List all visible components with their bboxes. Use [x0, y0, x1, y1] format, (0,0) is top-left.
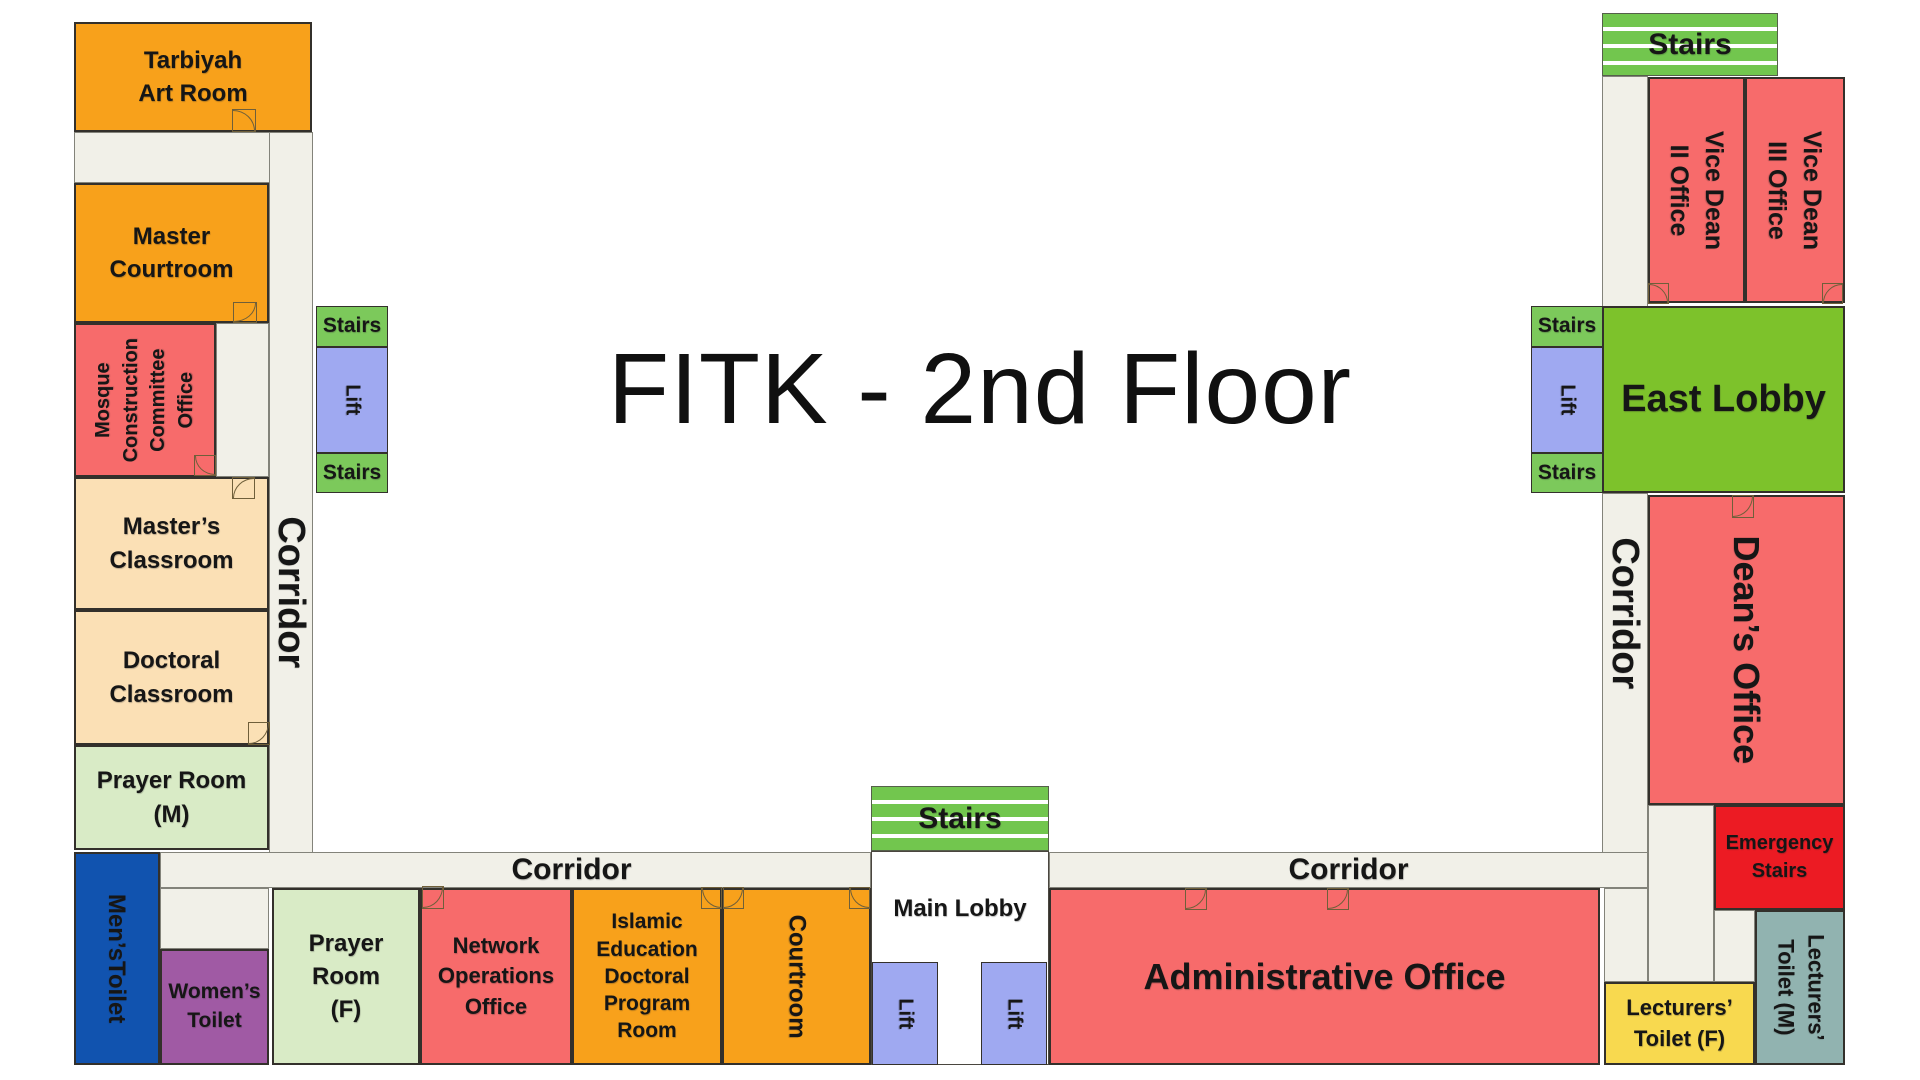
emergency-stairs: Emergency Stairs	[1714, 805, 1845, 910]
stairs-main-lobby-label: Stairs	[918, 798, 1001, 839]
courtroom-label: Courtroom	[780, 915, 813, 1039]
east-lobby-label: East Lobby	[1621, 373, 1826, 425]
administrative-office-label: Administrative Office	[1143, 952, 1505, 1002]
east-lobby: East Lobby	[1602, 306, 1845, 493]
room-tarbiyah-art-room: Tarbiyah Art Room	[74, 22, 312, 132]
lift-left: Lift	[316, 347, 388, 453]
lecturers-toilet-m-label: Lecturers’ Toilet (M)	[1770, 934, 1831, 1040]
door-icon	[232, 109, 256, 132]
stairs-main-lobby: Stairs	[871, 786, 1049, 851]
islamic-education-doctoral-program-room-label: Islamic Education Doctoral Program Room	[596, 908, 698, 1044]
room-courtroom: Courtroom	[722, 888, 871, 1065]
corridor-bottom-right-label: Corridor	[1289, 849, 1409, 890]
corridor-left-label: Corridor	[265, 517, 317, 669]
tarbiyah-art-room-label: Tarbiyah Art Room	[138, 44, 247, 110]
floor-beside-mosque-office	[216, 323, 269, 477]
room-lecturers-toilet-m: Lecturers’ Toilet (M)	[1755, 910, 1845, 1065]
lecturers-toilet-f-label: Lecturers’ Toilet (F)	[1626, 993, 1732, 1054]
womens-toilet-label: Women’s Toilet	[168, 978, 260, 1036]
room-mens-toilet: Men’sToilet	[74, 852, 160, 1065]
doctoral-classroom-label: Doctoral Classroom	[109, 644, 233, 710]
room-lecturers-toilet-f: Lecturers’ Toilet (F)	[1604, 982, 1755, 1065]
mosque-construction-committee-office-label: Mosque Construction Committee Office	[90, 338, 200, 462]
floor-above-womens-toilet	[160, 888, 269, 949]
room-mosque-construction-committee-office: Mosque Construction Committee Office	[74, 323, 216, 477]
corridor-bottom-right: Corridor	[1049, 852, 1648, 888]
vice-dean-ii-office-label: Vice Dean II Office	[1662, 130, 1731, 249]
door-icon	[1185, 888, 1207, 910]
room-network-operations-office: Network Operations Office	[420, 888, 572, 1065]
room-vice-dean-ii-office: Vice Dean II Office	[1648, 77, 1745, 303]
master-courtroom-label: Master Courtroom	[110, 220, 234, 286]
room-deans-office: Dean’s Office	[1648, 495, 1845, 805]
room-prayer-room-f: Prayer Room (F)	[272, 888, 420, 1065]
stairs-top-right-label: Stairs	[1648, 24, 1731, 65]
lift-lobby-east-label: Lift	[1000, 998, 1028, 1029]
stairs-top-right: Stairs	[1602, 13, 1778, 76]
stairs-left-top-label: Stairs	[323, 312, 381, 341]
corridor-bottom-left: Corridor	[160, 852, 871, 888]
stairs-left-bottom: Stairs	[316, 453, 388, 493]
prayer-room-m-label: Prayer Room (M)	[97, 764, 246, 830]
room-administrative-office: Administrative Office	[1049, 888, 1600, 1065]
stairs-right-bottom-label: Stairs	[1538, 459, 1596, 488]
room-islamic-education-doctoral-program-room: Islamic Education Doctoral Program Room	[572, 888, 722, 1065]
prayer-room-f-label: Prayer Room (F)	[309, 927, 384, 1026]
room-prayer-room-m: Prayer Room (M)	[74, 745, 269, 850]
floor-bottom-right-c	[1714, 910, 1755, 982]
corridor-left-vertical: Corridor	[269, 132, 313, 888]
door-icon	[233, 302, 257, 323]
corridor-right-top	[1602, 76, 1648, 307]
masters-classroom-label: Master’s Classroom	[109, 510, 233, 576]
vice-dean-iii-office-label: Vice Dean III Office	[1761, 130, 1830, 249]
corridor-right-vertical: Corridor	[1602, 493, 1648, 853]
room-vice-dean-iii-office: Vice Dean III Office	[1745, 77, 1845, 303]
door-icon	[248, 722, 270, 745]
main-lobby-label: Main Lobby	[893, 892, 1026, 925]
lift-lobby-west-label: Lift	[891, 998, 919, 1029]
door-icon	[422, 886, 444, 909]
stairs-left-bottom-label: Stairs	[323, 459, 381, 488]
lift-right: Lift	[1531, 347, 1603, 453]
emergency-stairs-label: Emergency Stairs	[1726, 830, 1834, 885]
stairs-right-top-label: Stairs	[1538, 312, 1596, 341]
room-doctoral-classroom: Doctoral Classroom	[74, 610, 269, 745]
floor-plan: Corridor Corridor Corridor Corridor Tarb…	[0, 0, 1920, 1080]
stairs-right-bottom: Stairs	[1531, 453, 1603, 493]
door-icon	[1648, 283, 1669, 304]
lift-lobby-west: Lift	[872, 962, 938, 1065]
lift-right-label: Lift	[1553, 384, 1581, 415]
lift-lobby-east: Lift	[981, 962, 1047, 1065]
corridor-bottom-left-label: Corridor	[512, 849, 632, 890]
stairs-right-top: Stairs	[1531, 306, 1603, 347]
deans-office-label: Dean’s Office	[1722, 536, 1772, 765]
corridor-right-label: Corridor	[1599, 537, 1651, 689]
door-icon	[849, 887, 870, 909]
room-womens-toilet: Women’s Toilet	[160, 949, 269, 1065]
door-icon	[723, 887, 744, 909]
stairs-left-top: Stairs	[316, 306, 388, 347]
floor-bottom-right-a	[1604, 888, 1648, 982]
floor-bottom-right-b	[1648, 805, 1714, 982]
network-operations-office-label: Network Operations Office	[438, 931, 554, 1022]
door-icon	[1732, 495, 1754, 518]
door-icon	[232, 477, 255, 499]
door-icon	[1822, 283, 1843, 304]
mens-toilet-label: Men’sToilet	[100, 894, 133, 1023]
lift-left-label: Lift	[338, 384, 366, 415]
page-title: FITK - 2nd Floor	[420, 332, 1540, 447]
door-icon	[701, 887, 722, 909]
door-icon	[194, 455, 216, 476]
door-icon	[1327, 888, 1349, 910]
